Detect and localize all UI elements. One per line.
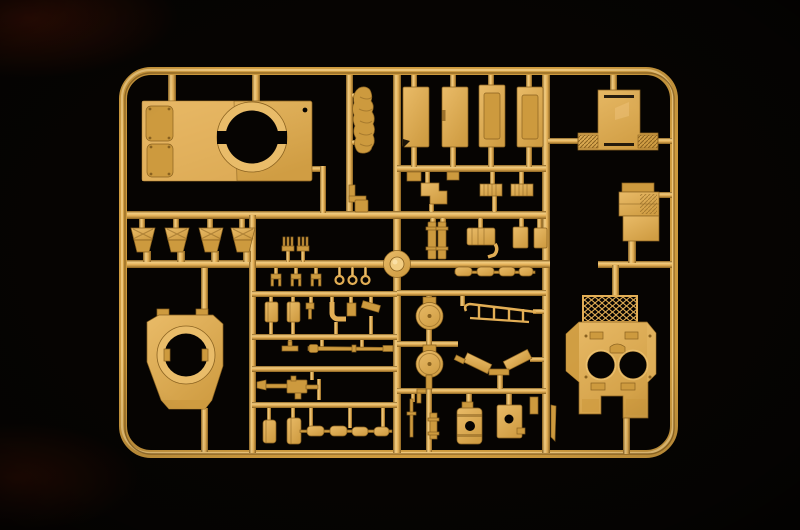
sprue-photo-canvas bbox=[0, 0, 800, 530]
sprue-photo bbox=[0, 0, 800, 530]
vignette-overlay bbox=[0, 0, 800, 530]
